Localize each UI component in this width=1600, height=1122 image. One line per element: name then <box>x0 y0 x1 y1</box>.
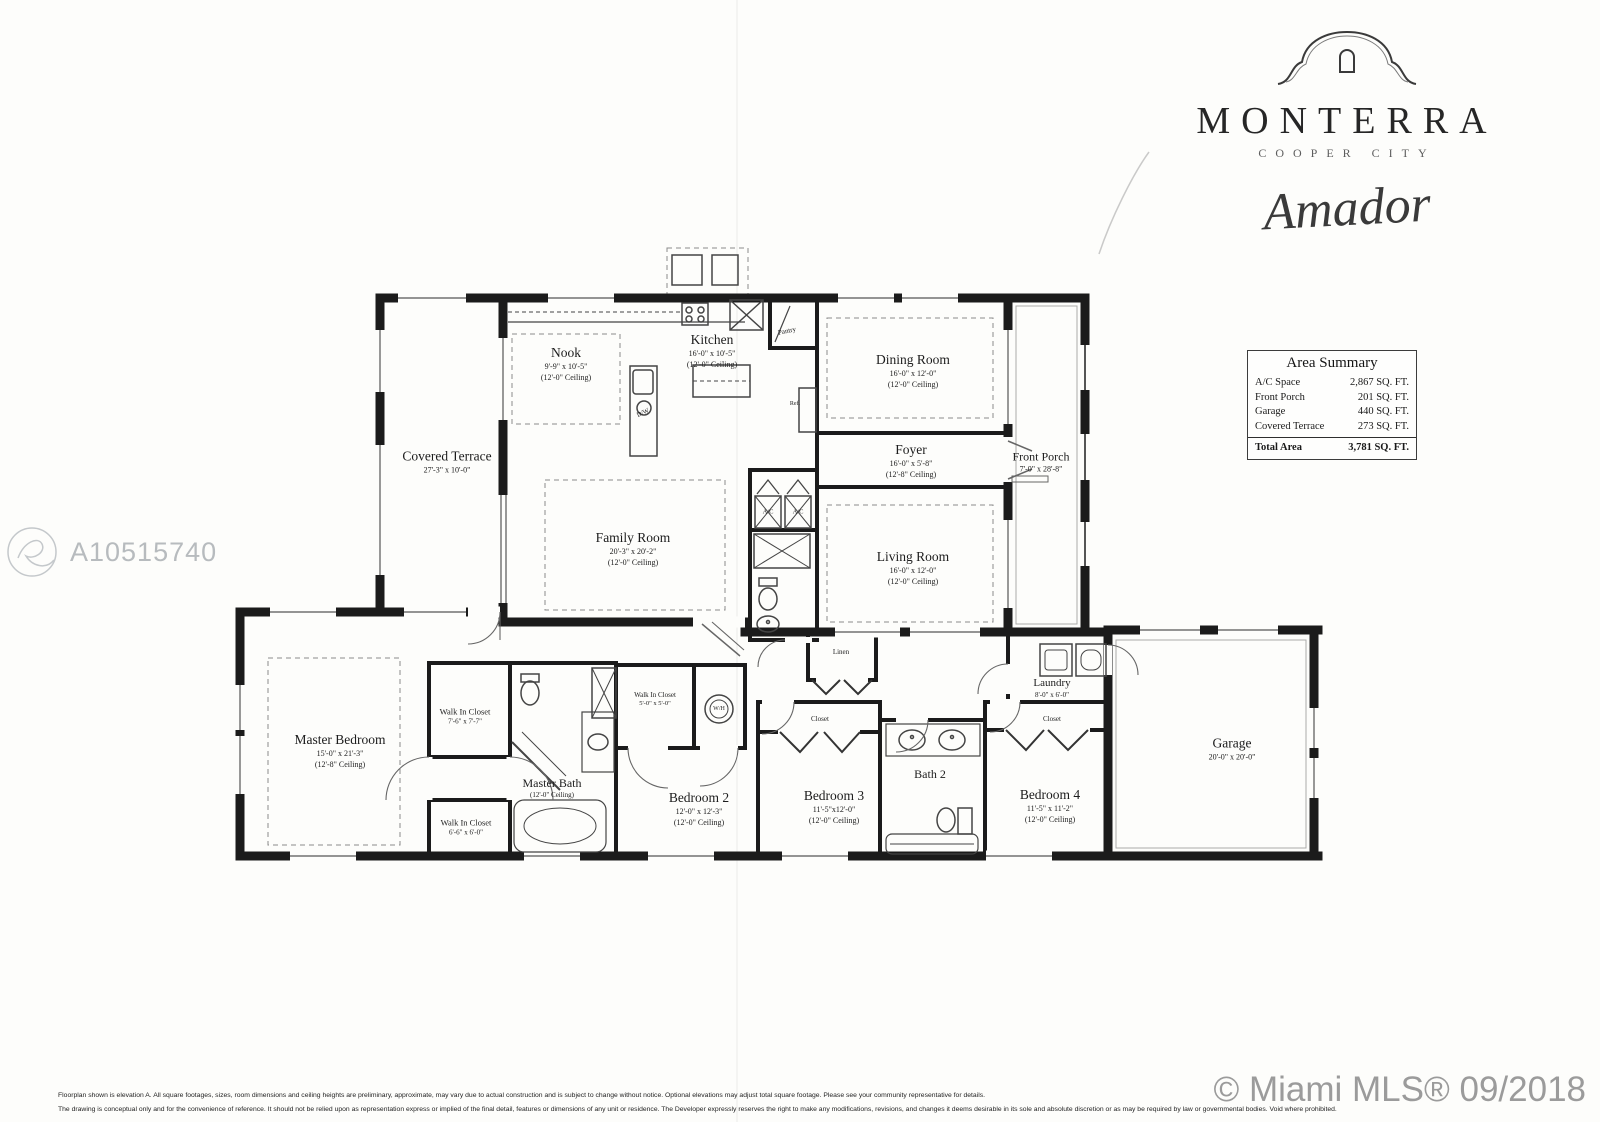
fixture-label-water-heater: W/H <box>713 706 725 712</box>
fixture-label-closet-bed4: Closet <box>1043 715 1061 723</box>
mls-credit: © Miami MLS® 09/2018 <box>1213 1070 1586 1110</box>
area-summary-row: A/C Space 2,867 SQ. FT. <box>1248 376 1416 391</box>
area-summary-row: Front Porch 201 SQ. FT. <box>1248 391 1416 406</box>
washer-dryer <box>1040 644 1106 676</box>
monterra-arch-icon <box>1272 26 1422 88</box>
area-summary-row: Garage 440 SQ. FT. <box>1248 405 1416 420</box>
room-label-front-porch: Front Porch 7'-0" x 28'-8" <box>1013 449 1070 476</box>
room-label-bedroom-4: Bedroom 4 11'-5" x 11'-2" (12'-0" Ceilin… <box>1020 786 1080 826</box>
fixture-label-closet-bed3: Closet <box>811 715 829 723</box>
pen-flourish <box>1095 148 1155 258</box>
fixture-label-refrigerator: Ref. <box>790 401 800 407</box>
room-label-foyer: Foyer 16'-0" x 5'-8" (12'-8" Ceiling) <box>886 441 936 481</box>
exterior-walls <box>240 298 1318 856</box>
room-label-walk-in-closet-1: Walk In Closet 7'-6" x 7'-7" <box>440 707 491 728</box>
floorplan-page: Nook 9'-9" x 10'-5" (12'-0" Ceiling) Kit… <box>0 0 1600 1122</box>
fixture-label-ac-2: A/C <box>793 509 804 516</box>
windows <box>235 293 1320 862</box>
room-label-laundry: Laundry 8'-0" x 6'-0" <box>1033 676 1070 700</box>
model-name: Amador <box>1179 170 1516 246</box>
room-label-garage: Garage 20'-0" x 20'-0" <box>1209 734 1256 763</box>
area-summary-table: Area Summary A/C Space 2,867 SQ. FT. Fro… <box>1247 350 1417 460</box>
room-label-walk-in-closet-2: Walk In Closet 6'-6" x 6'-0" <box>441 818 492 839</box>
room-label-nook: Nook 9'-9" x 10'-5" (12'-0" Ceiling) <box>541 344 591 384</box>
disclaimer-line-1: Floorplan shown is elevation A. All squa… <box>58 1092 985 1099</box>
porch-colonnade <box>1081 298 1090 632</box>
ac-bath-fixtures <box>754 480 811 632</box>
room-label-dining-room: Dining Room 16'-0" x 12'-0" (12'-0" Ceil… <box>876 351 950 391</box>
room-label-covered-terrace: Covered Terrace 27'-3" x 10'-0" <box>402 447 491 476</box>
fixture-label-linen: Linen <box>833 648 849 656</box>
area-summary-total-row: Total Area 3,781 SQ. FT. <box>1248 437 1416 456</box>
room-label-walk-in-closet-3: Walk In Closet 5'-0" x 5'-0" <box>634 691 676 709</box>
room-label-bath-2: Bath 2 <box>914 766 946 782</box>
community-location: COOPER CITY <box>1180 146 1514 161</box>
bath2-fixtures <box>886 724 980 854</box>
master-bath-fixtures <box>512 668 616 852</box>
area-summary-row: Covered Terrace 273 SQ. FT. <box>1248 420 1416 435</box>
room-label-family-room: Family Room 20'-3" x 20'-2" (12'-0" Ceil… <box>596 529 671 569</box>
room-label-master-bedroom: Master Bedroom 15'-0" x 21'-3" (12'-8" C… <box>294 731 385 771</box>
mls-watermark-icon <box>6 524 62 580</box>
fixture-label-ac-1: A/C <box>763 509 774 516</box>
area-summary-title: Area Summary <box>1248 355 1416 372</box>
room-label-bedroom-3: Bedroom 3 11'-5"x12'-0" (12'-0" Ceiling) <box>804 787 864 827</box>
disclaimer-line-2: The drawing is conceptual only and for t… <box>58 1106 1337 1113</box>
room-label-master-bath: Master Bath (12'-0" Ceiling) <box>522 777 582 799</box>
room-label-living-room: Living Room 16'-0" x 12'-0" (12'-0" Ceil… <box>877 548 949 588</box>
mls-watermark: A10515740 <box>6 524 217 580</box>
community-name: MONTERRA <box>1180 99 1514 143</box>
brand-block: MONTERRA COOPER CITY Amador <box>1180 26 1514 238</box>
room-label-kitchen: Kitchen 16'-0" x 10'-5" (12'-0" Ceiling) <box>687 331 737 371</box>
mls-watermark-id: A10515740 <box>70 537 217 568</box>
room-label-bedroom-2: Bedroom 2 12'-0" x 12'-3" (12'-0" Ceilin… <box>669 789 729 829</box>
